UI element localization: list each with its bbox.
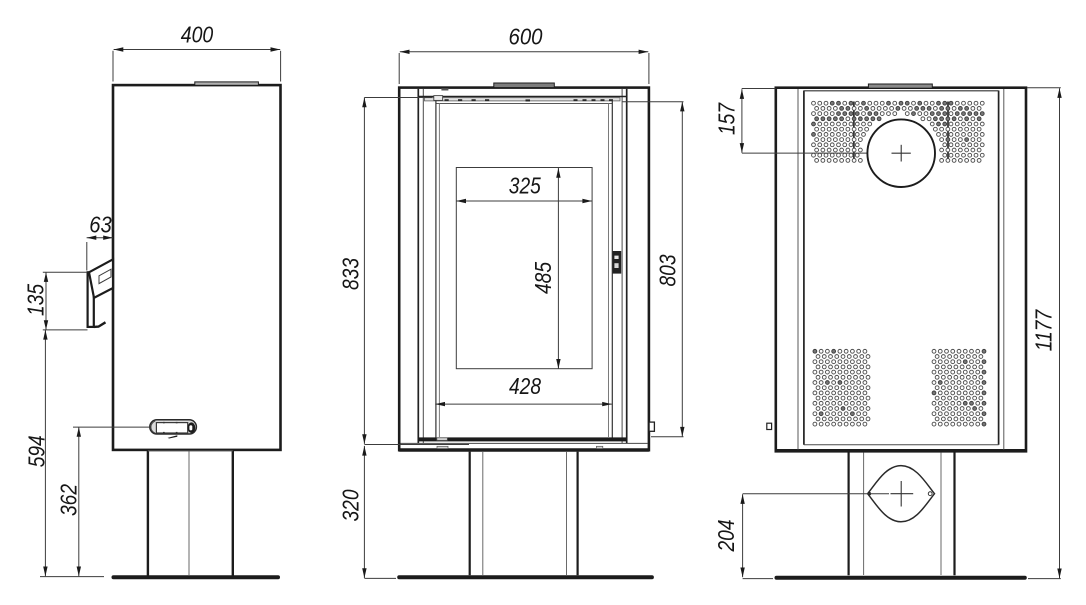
svg-text:204: 204 <box>713 520 739 553</box>
svg-text:135: 135 <box>23 283 49 316</box>
svg-text:400: 400 <box>181 21 214 47</box>
svg-text:428: 428 <box>509 373 541 399</box>
svg-text:320: 320 <box>337 490 363 522</box>
svg-text:362: 362 <box>55 484 81 516</box>
svg-text:485: 485 <box>530 261 556 294</box>
svg-text:1177: 1177 <box>1031 309 1057 351</box>
svg-text:325: 325 <box>509 173 542 199</box>
svg-text:594: 594 <box>23 435 49 467</box>
svg-text:63: 63 <box>89 212 112 238</box>
svg-text:803: 803 <box>654 255 680 287</box>
svg-text:600: 600 <box>509 24 543 50</box>
svg-text:157: 157 <box>713 102 739 135</box>
svg-text:833: 833 <box>337 258 363 290</box>
